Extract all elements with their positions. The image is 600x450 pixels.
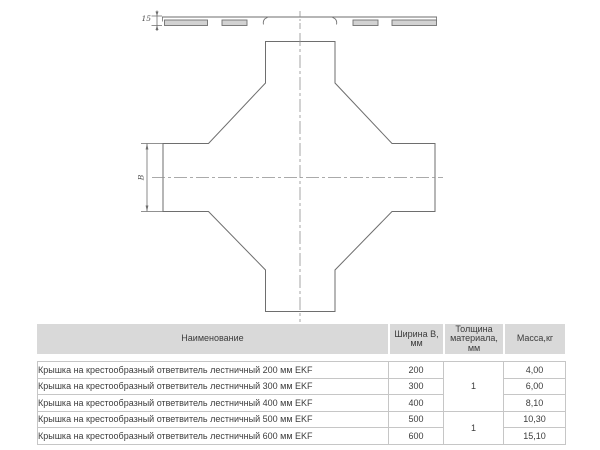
flange-segment <box>165 20 208 26</box>
cell-width: 600 <box>389 428 444 445</box>
cell-width: 400 <box>389 395 444 412</box>
header-width: Ширина В, мм <box>388 324 443 354</box>
spec-table: Наименование Ширина В, мм Толщина матери… <box>37 324 565 445</box>
cell-width: 500 <box>389 411 444 428</box>
table-row: Крышка на крестообразный ответвитель лес… <box>38 411 566 428</box>
header-thickness: Толщина материала, мм <box>443 324 503 354</box>
cell-mass: 6,00 <box>504 378 566 395</box>
dimension-15: 15 <box>141 11 162 32</box>
table-header-row: Наименование Ширина В, мм Толщина матери… <box>37 324 565 354</box>
table-row: Крышка на крестообразный ответвитель лес… <box>38 362 566 379</box>
cell-thickness-group2: 1 <box>444 411 504 444</box>
cell-mass: 15,10 <box>504 428 566 445</box>
cell-name: Крышка на крестообразный ответвитель лес… <box>38 428 389 445</box>
flange-segment <box>222 20 247 26</box>
dim-b-label: В <box>137 174 146 181</box>
flange-segment <box>392 20 437 26</box>
flange-segment <box>353 20 378 26</box>
header-mass-label: Масса,кг <box>517 334 553 344</box>
header-name-label: Наименование <box>181 334 243 344</box>
header-mass: Масса,кг <box>503 324 565 354</box>
cell-name: Крышка на крестообразный ответвитель лес… <box>38 395 389 412</box>
header-width-line2: мм <box>410 339 422 349</box>
cell-name: Крышка на крестообразный ответвитель лес… <box>38 411 389 428</box>
technical-drawing: 15 В <box>0 0 600 324</box>
plan-view-cross <box>152 33 443 322</box>
cell-mass: 8,10 <box>504 395 566 412</box>
cell-thickness-group1: 1 <box>444 362 504 412</box>
cell-mass: 4,00 <box>504 362 566 379</box>
cell-width: 200 <box>389 362 444 379</box>
dim-15-label: 15 <box>141 14 151 23</box>
table-body: Крышка на крестообразный ответвитель лес… <box>37 361 566 445</box>
cell-name: Крышка на крестообразный ответвитель лес… <box>38 362 389 379</box>
header-thickness-line3: мм <box>468 344 480 354</box>
side-view <box>162 11 437 29</box>
cell-width: 300 <box>389 378 444 395</box>
edge-hook <box>333 18 337 25</box>
header-name: Наименование <box>37 324 388 354</box>
cell-mass: 10,30 <box>504 411 566 428</box>
cell-name: Крышка на крестообразный ответвитель лес… <box>38 378 389 395</box>
page: 15 В Наименование Ширина В, мм Т <box>0 0 600 450</box>
edge-hook <box>263 18 267 25</box>
